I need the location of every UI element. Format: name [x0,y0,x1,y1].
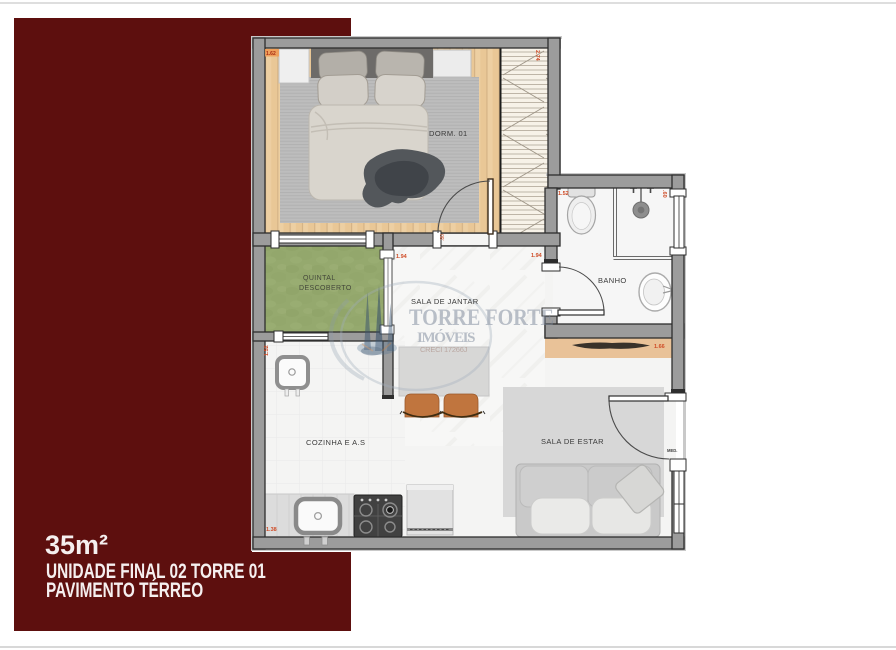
svg-text:QUINTAL: QUINTAL [303,275,336,282]
svg-text:1.66: 1.66 [654,344,665,350]
svg-text:.80: .80 [440,234,446,241]
svg-text:1.62: 1.62 [266,51,276,57]
svg-text:MED.: MED. [667,448,677,453]
svg-text:1.52: 1.52 [558,191,569,197]
svg-text:1.52: 1.52 [264,345,270,356]
svg-text:DORM. 01: DORM. 01 [429,129,468,138]
svg-text:.60: .60 [661,190,667,198]
svg-text:TORRE FORTE: TORRE FORTE [409,305,554,330]
svg-text:BANHO: BANHO [598,276,627,285]
svg-text:1.38: 1.38 [266,527,277,533]
svg-text:SALA DE JANTAR: SALA DE JANTAR [411,297,479,306]
svg-text:2.74: 2.74 [534,50,540,62]
svg-text:IMÓVEIS: IMÓVEIS [417,329,477,346]
svg-text:1.94: 1.94 [531,253,543,259]
svg-text:DESCOBERTO: DESCOBERTO [299,285,352,292]
svg-text:COZINHA E A.S: COZINHA E A.S [306,438,365,447]
svg-text:1.94: 1.94 [396,254,408,260]
svg-text:SALA DE ESTAR: SALA DE ESTAR [541,437,604,446]
svg-text:CRECI 17266J: CRECI 17266J [420,345,468,354]
